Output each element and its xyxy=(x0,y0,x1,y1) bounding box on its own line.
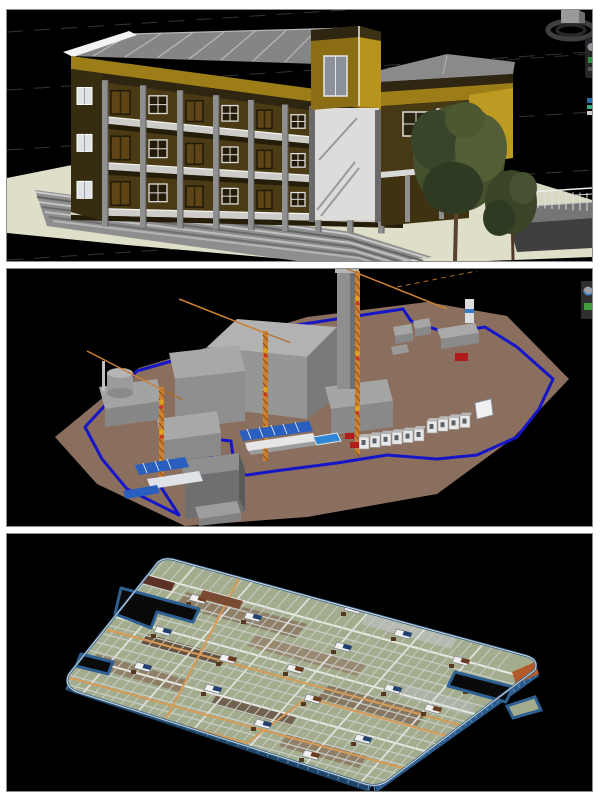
viewport-site-render xyxy=(6,268,593,527)
selection-cluster-icon[interactable] xyxy=(587,98,592,120)
red-vehicle xyxy=(345,433,354,439)
pole xyxy=(102,361,105,391)
roof xyxy=(71,28,351,64)
stair-tower xyxy=(309,26,381,222)
model-status-green-icon[interactable] xyxy=(588,57,592,63)
red-vehicle xyxy=(350,442,359,448)
model-status-green-icon[interactable] xyxy=(584,303,592,310)
viewport-toolbar xyxy=(585,38,592,78)
red-equipment xyxy=(455,353,468,361)
viewport-deck-render xyxy=(6,533,593,792)
navigation-wheel-icon[interactable] xyxy=(548,10,592,39)
tool-icon[interactable] xyxy=(588,67,592,71)
viewport-building-render xyxy=(6,9,593,262)
viewport-toolbar xyxy=(581,281,592,319)
edge-tab xyxy=(507,697,541,718)
block-front xyxy=(157,411,221,463)
